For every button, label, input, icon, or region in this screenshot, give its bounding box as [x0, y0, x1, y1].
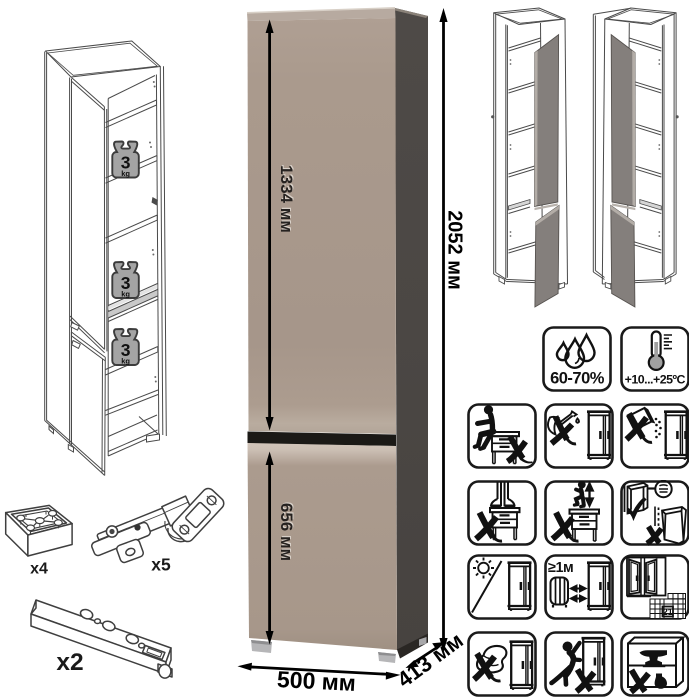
svg-text:21: 21	[663, 607, 673, 617]
svg-text:x2: x2	[56, 649, 83, 676]
svg-text:x4: x4	[30, 561, 48, 578]
svg-text:1334 мм1334 мм: 1334 мм1334 мм	[277, 164, 297, 233]
svg-text:kg: kg	[121, 169, 130, 178]
svg-text:x5: x5	[151, 555, 171, 575]
svg-text:60-70%: 60-70%	[550, 370, 605, 388]
svg-text:500 мм: 500 мм	[276, 666, 356, 696]
svg-text:2052 мм: 2052 мм	[444, 210, 466, 290]
svg-text:≥1м: ≥1м	[548, 560, 573, 576]
svg-text:+10...+25ºC: +10...+25ºC	[625, 373, 686, 387]
svg-text:656 мм656 мм: 656 мм656 мм	[277, 502, 297, 561]
